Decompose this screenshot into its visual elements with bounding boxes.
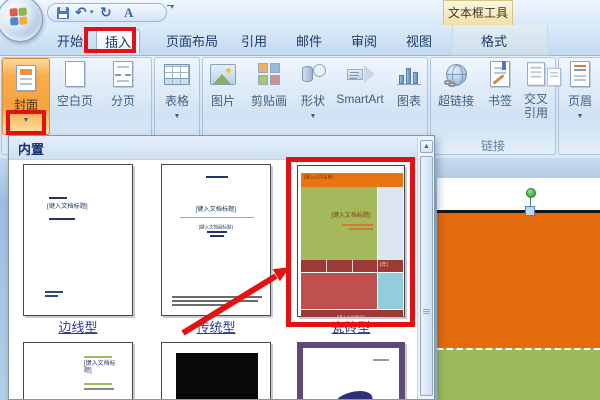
picture-icon — [210, 64, 236, 85]
scrollbar-thumb[interactable] — [420, 156, 433, 396]
save-icon[interactable] — [57, 7, 69, 19]
bookmark-button[interactable]: 书签 — [482, 58, 518, 109]
gallery-item-bianxian[interactable]: [键入文档标题] — [23, 164, 133, 316]
hyperlink-icon — [446, 64, 467, 85]
thumb-title: [键入文档标题] — [47, 203, 88, 210]
chart-icon — [397, 63, 421, 85]
tab-format[interactable]: 格式 — [470, 29, 518, 54]
gallery-item-chuantong[interactable]: [键入文档标题] [键入文档副标题] — [161, 164, 271, 316]
page-break-button[interactable]: 分页 — [99, 58, 147, 109]
annotation-box-cizhuan — [286, 157, 415, 327]
hyperlink-button[interactable]: 超链接 — [432, 58, 480, 109]
thumb-subtitle: [键入文档副标题] — [199, 225, 233, 230]
gallery-item-row2-3[interactable] — [297, 342, 405, 400]
shapes-button[interactable]: 形状 ▼ — [295, 58, 331, 120]
shapes-dropdown-icon[interactable]: ▼ — [310, 113, 317, 120]
office-logo-icon — [9, 7, 27, 25]
group-links-label: 链接 — [430, 139, 556, 153]
scrollbar-grip — [423, 309, 430, 315]
tab-mailings[interactable]: 邮件 — [287, 29, 331, 54]
document-green-area[interactable] — [437, 348, 600, 400]
scroll-up-icon[interactable]: ▲ — [420, 140, 433, 153]
cross-reference-button[interactable]: 交叉引用 — [518, 58, 554, 120]
header-icon — [570, 61, 590, 87]
clip-art-button[interactable]: 剪贴画 — [243, 58, 295, 109]
selected-textbox-orange[interactable] — [437, 213, 600, 348]
quick-access-toolbar: ↶ ▾ ↻ A — [47, 3, 167, 22]
gallery-item-row2-2[interactable] — [161, 342, 271, 400]
annotation-box-cover-dropdown — [6, 110, 46, 135]
shapes-icon — [300, 62, 326, 86]
chart-button[interactable]: 图表 — [389, 58, 429, 109]
bookmark-icon — [490, 61, 510, 87]
gallery-item-bianxian-label: 边线型 — [23, 320, 133, 336]
style-icon[interactable]: A — [124, 4, 133, 21]
tab-review[interactable]: 审阅 — [342, 29, 386, 54]
cross-reference-icon — [527, 62, 545, 85]
tab-references[interactable]: 引用 — [232, 29, 276, 54]
picture-button[interactable]: 图片 — [203, 58, 243, 109]
smartart-icon — [345, 63, 375, 85]
resize-handle-top[interactable] — [525, 206, 535, 216]
annotation-box-insert-tab — [84, 27, 136, 53]
page-break-icon — [113, 61, 133, 87]
blank-page-icon — [65, 61, 85, 87]
customize-qat-icon[interactable]: ▾ — [167, 5, 177, 11]
undo-dropdown-icon[interactable]: ▾ — [90, 4, 94, 21]
header-button[interactable]: 页眉 ▼ — [560, 58, 600, 120]
thumb-title: [键入文档标题] — [84, 360, 119, 374]
header-dropdown-icon[interactable]: ▼ — [577, 113, 584, 120]
smartart-button[interactable]: SmartArt — [331, 58, 389, 106]
redo-icon[interactable]: ↻ — [100, 4, 112, 21]
thumb-title: [键入文档标题] — [196, 206, 237, 213]
tab-page-layout[interactable]: 页面布局 — [158, 29, 226, 54]
table-dropdown-icon[interactable]: ▼ — [174, 113, 181, 120]
blank-page-button[interactable]: 空白页 — [52, 58, 98, 109]
document-canvas[interactable] — [437, 178, 600, 400]
rotation-handle[interactable] — [526, 188, 536, 198]
table-button[interactable]: 表格 ▼ — [156, 58, 198, 120]
gallery-scrollbar[interactable]: ▲ — [417, 137, 434, 400]
undo-icon[interactable]: ↶ — [75, 4, 87, 21]
contextual-tab-group-label: 文本框工具 — [443, 0, 513, 25]
clip-art-icon — [258, 63, 280, 85]
gallery-section-title: 内置 — [18, 139, 44, 158]
gallery-item-row2-1[interactable]: [键入文档标题] — [23, 342, 133, 400]
gallery-item-chuantong-label: 传统型 — [161, 320, 271, 336]
cover-page-icon — [16, 65, 36, 91]
table-icon — [164, 64, 190, 85]
tab-view[interactable]: 视图 — [397, 29, 441, 54]
